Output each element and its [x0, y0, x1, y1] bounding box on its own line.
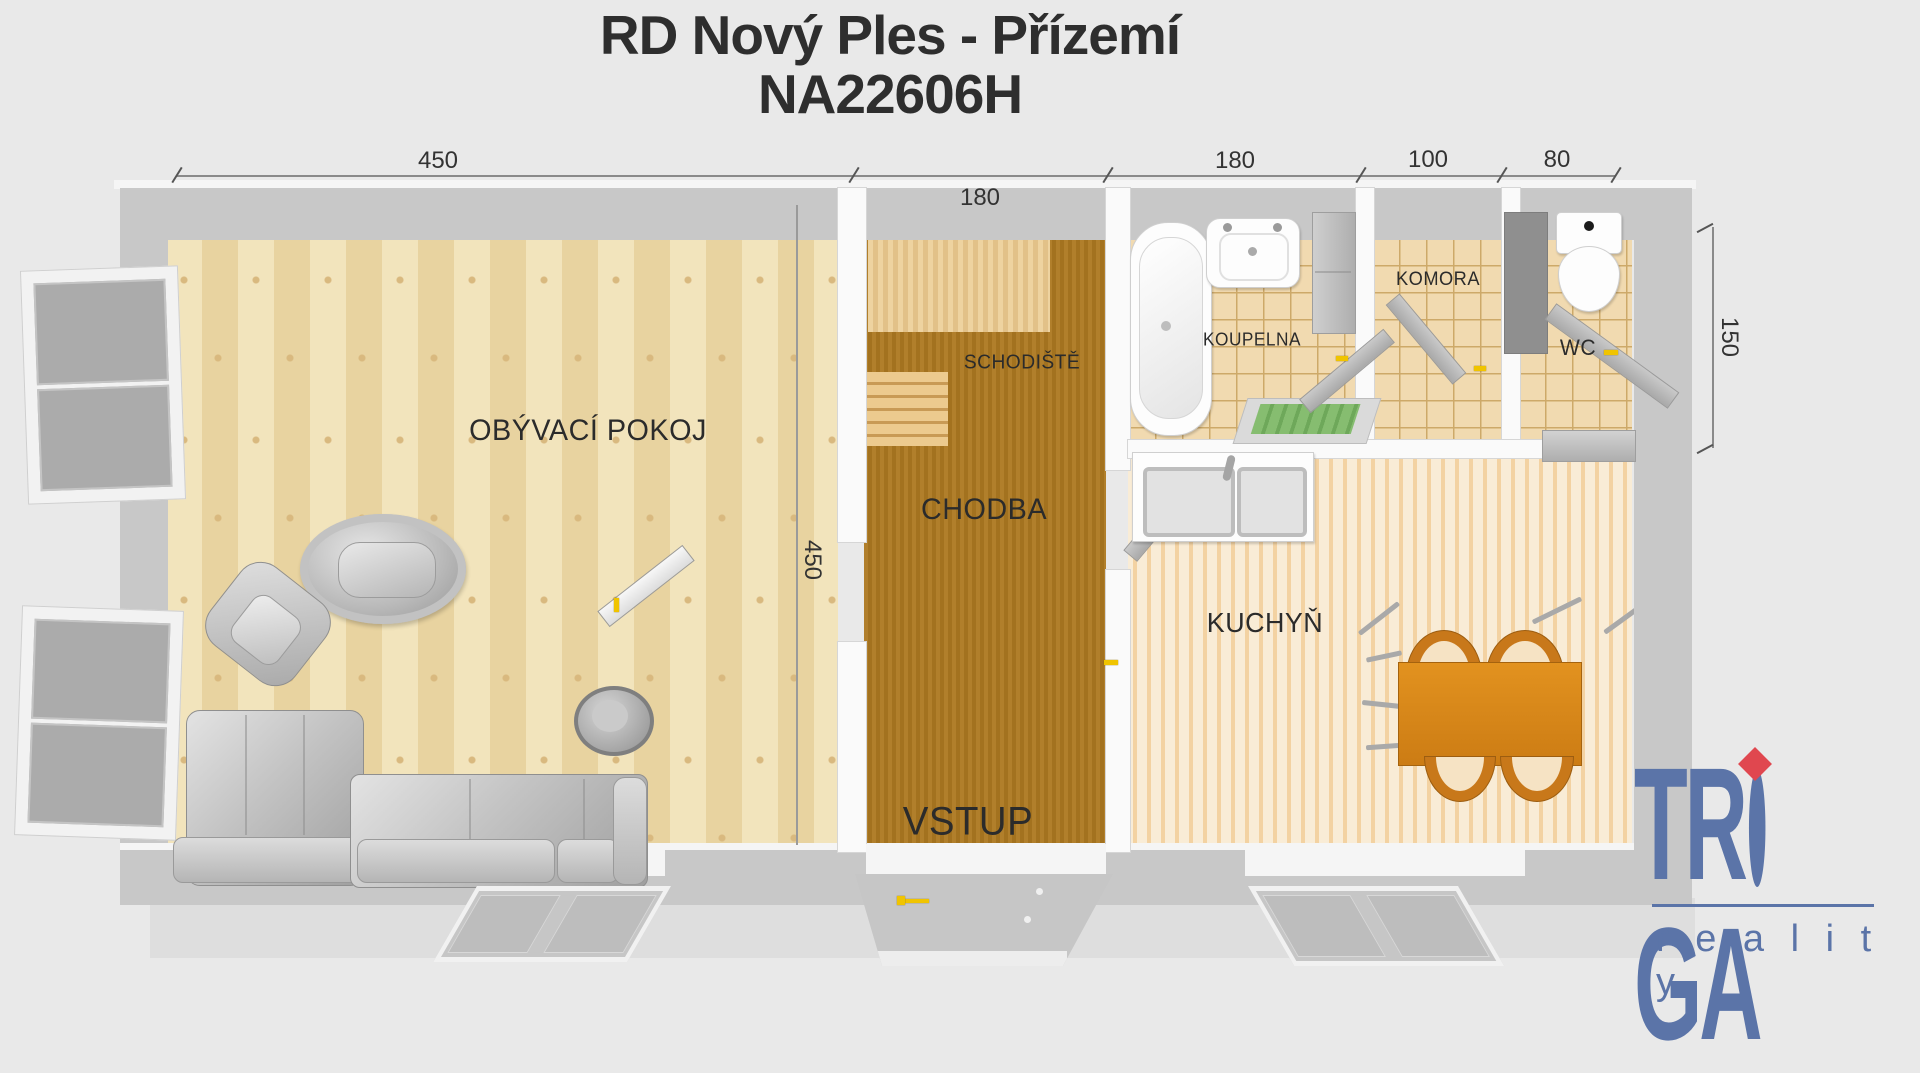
entry-label: VSTUP — [903, 800, 1033, 845]
side-table-top — [592, 700, 628, 732]
bathroom-cabinet — [1312, 212, 1356, 334]
dimension-line-hall-depth — [796, 205, 798, 845]
window-pane — [27, 723, 166, 828]
cabinet-shelf-line — [1315, 271, 1351, 273]
armchair-cushion — [225, 589, 306, 670]
sofa-seat-cushion — [173, 837, 375, 883]
hinge-dot — [1024, 916, 1031, 923]
bathroom-sink — [1206, 218, 1300, 288]
sink-bowl — [1219, 233, 1289, 281]
side-table — [574, 686, 654, 756]
wall-living-hall-upper — [838, 188, 866, 542]
bathtub-basin — [1139, 237, 1203, 419]
bathtub-drain — [1161, 321, 1171, 331]
dimension-tick — [1697, 223, 1714, 233]
window-pane — [37, 385, 172, 492]
dim-bath-width: 180 — [1215, 147, 1255, 175]
sofa-seam — [303, 715, 305, 835]
threshold-kitchen-terrace — [1245, 844, 1525, 876]
wc-label: WC — [1560, 335, 1596, 361]
dim-hall-width: 180 — [960, 184, 1000, 212]
wall-hall-kitchen-upper — [1106, 188, 1130, 470]
triga-logo-subtitle: r e a l i t y — [1656, 918, 1920, 1004]
hall-kitchen-door-handle — [1104, 660, 1118, 665]
window-pane — [31, 619, 170, 724]
sofa-seat-cushion — [357, 839, 555, 883]
pantry-label: KOMORA — [1396, 269, 1480, 291]
sofa-seam — [469, 779, 471, 839]
sink-basin-right — [1237, 467, 1307, 537]
dining-chair-seat — [1436, 757, 1484, 791]
window-pane — [33, 279, 168, 386]
green-towel — [1251, 404, 1361, 434]
hinge-dot — [1036, 888, 1043, 895]
pantry-open-door-panel — [1504, 212, 1548, 354]
bathroom-label: KOUPELNA — [1203, 330, 1301, 351]
faucet-icon — [1223, 223, 1232, 232]
living-door-handle — [614, 598, 619, 612]
plan-title-line2: NA22606H — [250, 65, 1530, 124]
dimension-line-top — [176, 175, 1615, 177]
sofa-seam — [583, 779, 585, 839]
dim-living-width: 450 — [418, 147, 458, 175]
sofa-left-section — [186, 710, 364, 886]
window-left-upper — [20, 265, 186, 504]
entry-door-handle — [901, 899, 929, 903]
pantry-door-handle — [1474, 366, 1486, 371]
triga-logo-underline — [1652, 904, 1874, 907]
sofa-right-section — [350, 774, 648, 888]
dimension-tick — [1697, 444, 1714, 454]
coffee-table-top — [338, 542, 436, 598]
dim-wc-width: 80 — [1544, 146, 1571, 174]
staircase-upper-flight — [868, 240, 1050, 332]
window-left-lower — [14, 605, 184, 841]
wall-living-hall-lower — [838, 642, 866, 852]
bathroom-door-handle — [1336, 356, 1348, 361]
dimension-line-wc-depth — [1712, 227, 1714, 448]
dining-table — [1398, 662, 1582, 766]
wall-top — [120, 188, 1692, 240]
bathtub — [1130, 222, 1212, 436]
dim-pantry-width: 100 — [1408, 146, 1448, 174]
kitchen-counter — [1132, 452, 1314, 542]
threshold-entry — [866, 844, 1106, 876]
kitchen-appliance-top-right — [1542, 430, 1636, 462]
living-room-label: OBÝVACÍ POKOJ — [469, 414, 707, 448]
dim-hall-depth: 450 — [798, 540, 826, 580]
entry-door-edge — [876, 951, 1067, 966]
floorplan-page: { "title": { "line1": "RD Nový Ples - Př… — [0, 0, 1920, 1005]
dining-chair-seat — [1512, 757, 1562, 791]
sofa-armrest — [613, 777, 647, 885]
faucet-icon — [1273, 223, 1282, 232]
sofa-seam — [245, 715, 247, 835]
kitchen-label: KUCHYŇ — [1207, 607, 1323, 639]
sink-basin-left — [1143, 467, 1235, 537]
staircase-steps — [864, 372, 948, 446]
toilet-flush-button — [1584, 221, 1594, 231]
entry-door-handle-knob — [897, 896, 905, 905]
dim-wc-depth: 150 — [1715, 317, 1743, 357]
wc-door-handle — [1604, 350, 1618, 355]
hall-label: CHODBA — [921, 493, 1047, 527]
triga-logo-i-leaf-icon — [1749, 769, 1766, 887]
plan-title: RD Nový Ples - Přízemí NA22606H — [250, 6, 1530, 125]
sofa-seat-cushion — [557, 839, 619, 883]
plan-title-line1: RD Nový Ples - Přízemí — [250, 6, 1530, 65]
triga-logo-text-left: TR — [1634, 734, 1745, 913]
staircase-label: SCHODIŠTĚ — [964, 352, 1080, 375]
wall-hall-kitchen-lower — [1106, 570, 1130, 852]
